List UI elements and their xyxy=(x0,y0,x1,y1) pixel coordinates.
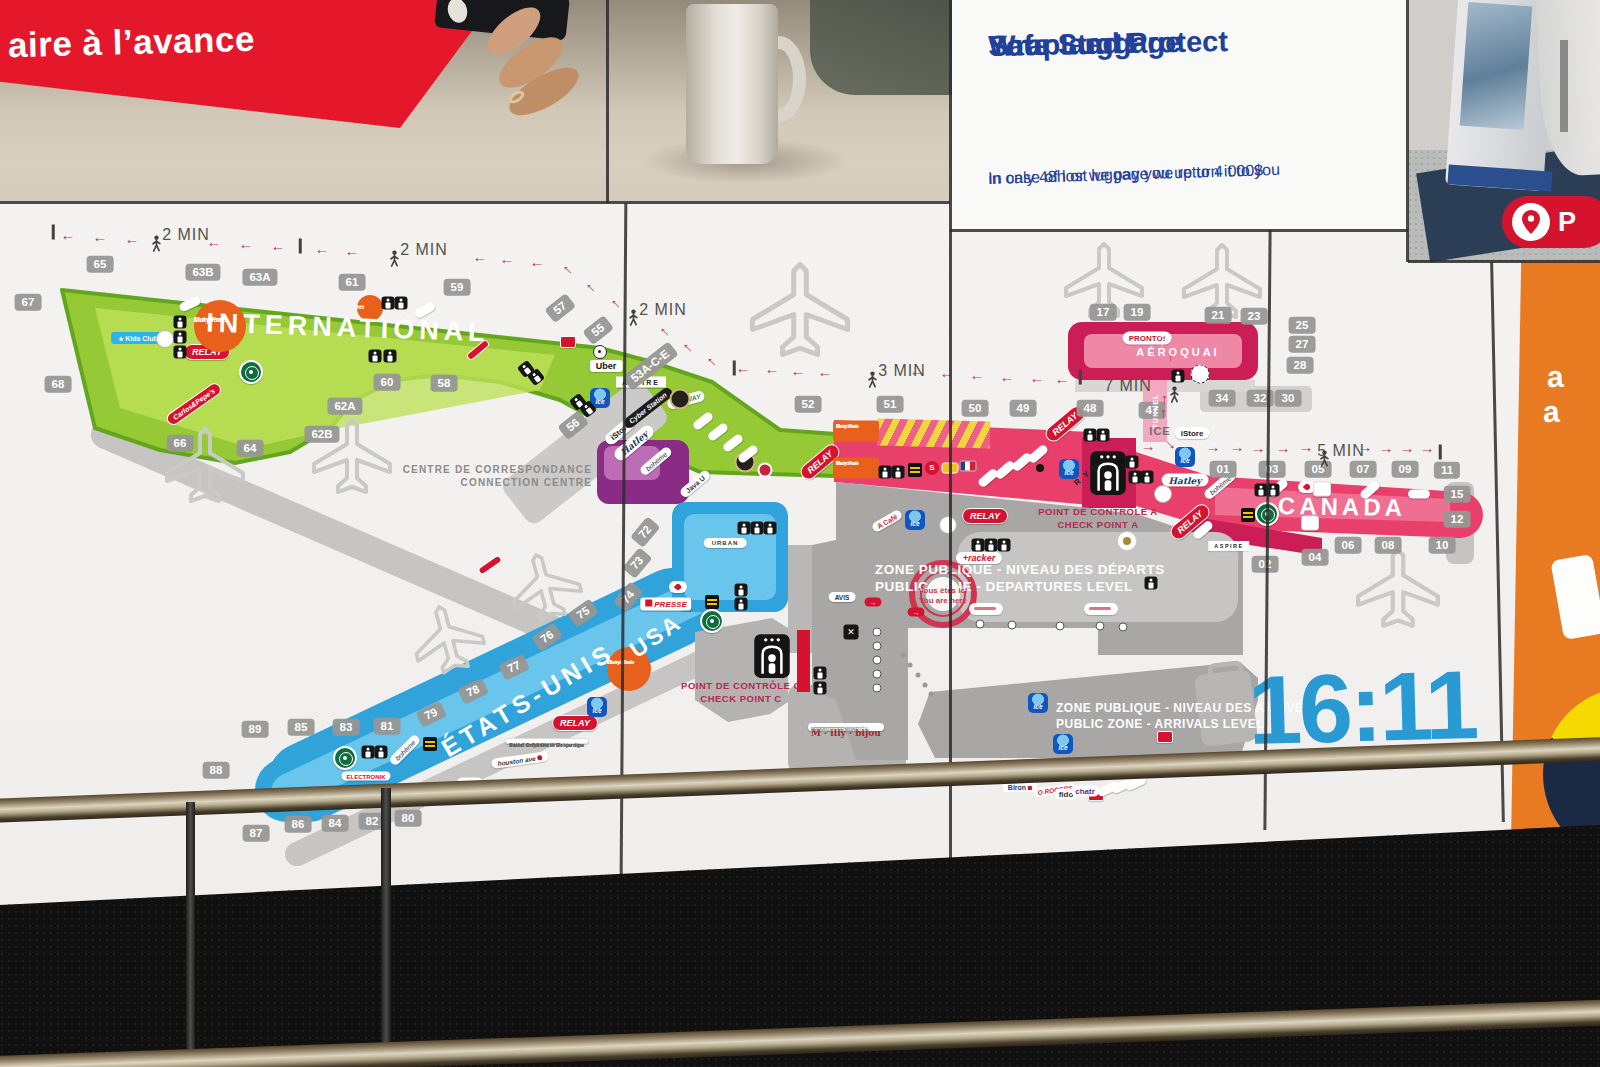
brand-pill xyxy=(1084,603,1118,615)
route-arrow: ← xyxy=(500,251,515,266)
gate-30: 30 xyxy=(1275,390,1302,407)
route-arrow: ← xyxy=(736,360,751,375)
route-arrow: ← xyxy=(1141,444,1156,459)
panel-seam xyxy=(1406,0,1409,262)
starbucks-icon xyxy=(239,360,263,384)
region-label-canada: CANADA xyxy=(1278,492,1406,522)
marriott-hotel-box: M · illy · bijouMARRIOTT TERMINALAÉROPOR… xyxy=(808,723,884,731)
route-arrow: ← xyxy=(1159,407,1174,422)
restroom-icon xyxy=(892,466,905,479)
airport-wayfinding-display-photo: aire à l’avance xyxy=(0,0,1600,1067)
route-arrow: ← xyxy=(1379,446,1394,461)
gate-25: 25 xyxy=(1289,317,1316,334)
route-arrow: ← xyxy=(315,241,330,256)
gate-48: 48 xyxy=(1077,400,1104,417)
duty-free-icon: MontréalDuty Free xyxy=(833,421,879,442)
hatley-pill: Hatley xyxy=(1162,474,1209,487)
walk-time-label: 3 MIN xyxy=(878,362,926,380)
security-checkpoint-C-icon xyxy=(754,634,789,678)
gate-01: 01 xyxy=(1210,461,1237,478)
map-note: Vous êtes ici xyxy=(919,586,967,595)
relay-store-pill: RELAY xyxy=(552,715,598,731)
wrap-machine-window xyxy=(1460,2,1532,130)
gate-17: 17 xyxy=(1090,304,1117,321)
walk-time-label: 2 MIN xyxy=(639,301,687,319)
pier-edge-strip xyxy=(86,416,607,663)
door-marker xyxy=(1056,622,1065,631)
gate-84: 84 xyxy=(322,815,349,832)
map-note: CHECK POINT C xyxy=(700,693,781,704)
path-dot xyxy=(929,692,934,697)
brand-icon xyxy=(1191,365,1210,384)
route-arrow: ← xyxy=(791,363,806,378)
gate-63A: 63A xyxy=(242,269,277,286)
region-label-a-roquai: AÉROQUAI xyxy=(1136,346,1219,358)
gate-50: 50 xyxy=(962,400,989,417)
ice-currency-icon: ice xyxy=(587,697,607,717)
urban-pill: URBAN xyxy=(704,538,747,548)
uber-pill: Uber xyxy=(590,360,623,372)
brand-pill: ELECTRONIK xyxy=(342,772,391,781)
gate-64: 64 xyxy=(237,440,264,457)
construction-stripes xyxy=(877,419,991,449)
route-arrow: ← xyxy=(345,243,360,258)
pin-icon xyxy=(1512,203,1550,241)
gate-28: 28 xyxy=(1287,357,1314,374)
route-tick xyxy=(1439,445,1442,460)
ad-title-line: Your Luggage xyxy=(988,24,1182,65)
gate-19: 19 xyxy=(1124,304,1151,321)
path-dot xyxy=(908,663,913,668)
gate-81: 81 xyxy=(374,718,401,735)
restroom-icon xyxy=(879,466,892,479)
gate-66: 66 xyxy=(167,435,194,452)
map-note: PUBLIC ZONE - DEPARTURES LEVEL xyxy=(875,579,1133,594)
uber-icon xyxy=(593,345,607,359)
gate-07: 07 xyxy=(1350,461,1377,478)
starbucks-icon xyxy=(700,609,724,633)
airplane-outline-icon xyxy=(1358,550,1438,626)
gate-88: 88 xyxy=(203,762,230,779)
map-note: CONNECTION CENTRE xyxy=(460,477,592,488)
gate-58: 58 xyxy=(431,375,458,392)
route-arrow: ← xyxy=(818,364,833,379)
route-arrow: ← xyxy=(125,231,140,246)
door-marker xyxy=(873,684,882,693)
route-arrow: ← xyxy=(530,254,545,269)
gate-03: 03 xyxy=(1259,461,1286,478)
location-pin-badge xyxy=(1502,196,1600,248)
route-tick xyxy=(1079,370,1082,385)
route-arrow: ← xyxy=(239,236,254,251)
brand-pill xyxy=(969,603,1003,615)
route-arrow: ← xyxy=(1420,446,1435,461)
gate-87: 87 xyxy=(243,825,270,842)
restroom-icon xyxy=(1172,370,1185,383)
restroom-icon xyxy=(735,584,748,597)
starbucks-icon xyxy=(333,746,357,770)
gate-62A: 62A xyxy=(327,398,362,415)
map-note: POINT DE CONTRÔLE C xyxy=(681,680,801,691)
restroom-icon xyxy=(814,667,827,680)
path-dot xyxy=(916,673,921,678)
brand-pill xyxy=(1408,490,1430,499)
presse-pill: PRESSE xyxy=(640,598,691,611)
exit-arrow-pill: → xyxy=(908,608,925,617)
map-note: POINT DE CONTRÔLE A xyxy=(1038,506,1157,517)
airplane-outline-icon xyxy=(753,265,848,355)
restroom-icon xyxy=(375,746,388,759)
gate-68: 68 xyxy=(45,376,72,393)
istore-pill: iStore xyxy=(1175,427,1210,439)
gate-23: 23 xyxy=(1241,308,1268,325)
map-note: CENTRE DE CORRESPONDANCE xyxy=(403,464,592,475)
restroom-icon xyxy=(972,539,985,552)
flag-icon xyxy=(960,461,977,472)
restroom-icon xyxy=(174,316,187,329)
gate-86: 86 xyxy=(285,816,312,833)
path-dot xyxy=(901,653,906,658)
route-arrow: ← xyxy=(1230,445,1245,460)
route-arrow: ← xyxy=(1206,445,1221,460)
pin-badge-letter: P xyxy=(1558,207,1576,238)
amenity-icon xyxy=(1154,485,1172,503)
route-tick xyxy=(52,225,55,240)
brand-icon xyxy=(1036,464,1044,472)
route-arrow: ← xyxy=(1400,446,1415,461)
gate-89: 89 xyxy=(242,721,269,738)
restroom-icon xyxy=(174,346,187,359)
brand-icon xyxy=(1117,531,1137,551)
gate-04: 04 xyxy=(1302,549,1329,566)
route-arrow: ← xyxy=(61,227,76,242)
restroom-icon xyxy=(814,682,827,695)
restroom-icon xyxy=(764,522,777,535)
chatr-pill: chatr xyxy=(1071,786,1099,797)
route-arrow: ← xyxy=(271,238,286,253)
gate-62B: 62B xyxy=(304,426,339,443)
walk-time-label: 7 MIN xyxy=(1104,377,1152,395)
panel-seam xyxy=(949,0,952,868)
route-arrow: ← xyxy=(1251,446,1266,461)
door-marker xyxy=(873,670,882,679)
brand-icon xyxy=(758,463,773,478)
panel-seam xyxy=(0,201,950,204)
route-arrow: ← xyxy=(1299,445,1314,460)
restroom-icon xyxy=(751,522,764,535)
door-marker xyxy=(976,620,985,629)
gate-34: 34 xyxy=(1209,390,1236,407)
ice-currency-icon: ice xyxy=(1175,447,1195,467)
route-tick xyxy=(299,239,302,254)
restroom-icon xyxy=(384,350,397,363)
brand-icon xyxy=(1157,731,1173,743)
restroom-icon xyxy=(395,297,408,310)
route-arrow: ← xyxy=(1055,371,1070,386)
gate-49: 49 xyxy=(1010,400,1037,417)
restroom-icon xyxy=(1145,577,1158,590)
panel-seam xyxy=(950,229,1408,232)
restroom-icon xyxy=(985,539,998,552)
brand-icon xyxy=(705,595,719,609)
gate-67: 67 xyxy=(15,294,42,311)
path-dot xyxy=(923,683,928,688)
restroom-icon xyxy=(735,598,748,611)
gate-60: 60 xyxy=(374,374,401,391)
route-arrow: ← xyxy=(765,361,780,376)
gate-51: 51 xyxy=(877,396,904,413)
walk-time-label: 2 MIN xyxy=(400,241,448,259)
railing-post xyxy=(381,788,391,1067)
brand-icon: S xyxy=(925,461,939,475)
brand-icon xyxy=(908,463,922,477)
plaza-premium-lounge-box: Salon Odyssée ⊙ DesjardinsPLAZA PREMIUM … xyxy=(505,738,589,744)
air-canada-icon xyxy=(669,581,687,593)
door-marker xyxy=(873,628,882,637)
panel-seam xyxy=(606,0,609,203)
brand-icon xyxy=(423,737,437,751)
orange-ad-letter: a xyxy=(1546,360,1564,395)
gate-09: 09 xyxy=(1392,461,1419,478)
gate-65: 65 xyxy=(87,256,114,273)
door-marker xyxy=(873,642,882,651)
aspire-lounge-pill: ASPIRE xyxy=(1208,541,1249,551)
gate-08: 08 xyxy=(1375,537,1402,554)
panel-seam xyxy=(1408,260,1600,263)
restroom-icon xyxy=(1141,471,1154,484)
gate-10: 10 xyxy=(1429,537,1456,554)
route-arrow: ← xyxy=(970,367,985,382)
route-arrow: ← xyxy=(1116,445,1131,460)
restroom-icon xyxy=(738,522,751,535)
brand-pill: AVIS xyxy=(829,592,856,602)
gate-85: 85 xyxy=(288,719,315,736)
route-arrow: ← xyxy=(940,365,955,380)
gate-63B: 63B xyxy=(185,264,220,281)
gate-80: 80 xyxy=(395,810,422,827)
restroom-icon xyxy=(362,746,375,759)
gate-27: 27 xyxy=(1289,336,1316,353)
restroom-icon xyxy=(1084,429,1097,442)
route-arrow: ← xyxy=(93,229,108,244)
route-arrow: ← xyxy=(1276,446,1291,461)
gate-52: 52 xyxy=(795,396,822,413)
luggage-tag-graphic xyxy=(1550,554,1600,640)
gate-83: 83 xyxy=(333,719,360,736)
gate-11: 11 xyxy=(1434,462,1460,479)
route-tick xyxy=(733,361,736,376)
amenity-icon xyxy=(156,330,174,348)
orange-ad-letter: a xyxy=(1542,395,1560,430)
amenity-icon xyxy=(939,516,957,534)
restroom-icon xyxy=(369,350,382,363)
gate-06: 06 xyxy=(1335,537,1362,554)
route-arrow: ← xyxy=(473,249,488,264)
gate-59: 59 xyxy=(444,279,471,296)
region-label-tunnel: TUNNEL xyxy=(1152,394,1159,428)
gate-21: 21 xyxy=(1205,307,1232,324)
cafe-icon xyxy=(670,389,691,410)
elevator-icon: ✕ xyxy=(844,625,859,640)
ice-currency-icon: ice xyxy=(1053,734,1073,754)
restroom-icon xyxy=(174,331,187,344)
exit-arrow-pill: → xyxy=(865,598,882,607)
wrap-machine-slot xyxy=(1560,40,1568,132)
door-marker xyxy=(1008,621,1017,630)
gate-12: 12 xyxy=(1444,511,1471,528)
gate-15: 15 xyxy=(1444,486,1471,503)
map-note: You are here xyxy=(919,596,967,605)
route-arrow: ← xyxy=(1030,370,1045,385)
gate-61: 61 xyxy=(339,274,366,291)
relay-store-pill: RELAY xyxy=(962,508,1008,524)
walk-time-label: 2 MIN xyxy=(162,226,210,244)
route-arrow: ← xyxy=(1091,445,1106,460)
door-marker xyxy=(1119,623,1128,632)
map-note: PUBLIC ZONE - ARRIVALS LEVEL xyxy=(1056,717,1264,731)
map-note: ZONE PUBLIQUE - NIVEAU DES DÉPARTS xyxy=(875,562,1165,577)
restroom-icon xyxy=(1097,429,1110,442)
brand-icon xyxy=(1241,508,1255,522)
duty-free-icon: MontréalDuty Free xyxy=(833,458,879,479)
safe-start-ad-panel: Safe Start! Wrap and Protect Your Luggag… xyxy=(952,0,1408,230)
map-note: CHECK POINT A xyxy=(1057,519,1138,530)
ad-body-line: in only 48h or we pay you up to 4 000$ xyxy=(988,159,1263,189)
door-marker xyxy=(873,656,882,665)
ice-currency-icon: ice xyxy=(1028,693,1048,713)
railing-post xyxy=(186,802,195,1067)
restroom-icon xyxy=(998,539,1011,552)
route-arrow: ← xyxy=(1000,369,1015,384)
door-marker xyxy=(1096,622,1105,631)
restroom-icon xyxy=(382,297,395,310)
ice-currency-icon: ice xyxy=(905,510,925,530)
brand-icon xyxy=(560,336,576,348)
